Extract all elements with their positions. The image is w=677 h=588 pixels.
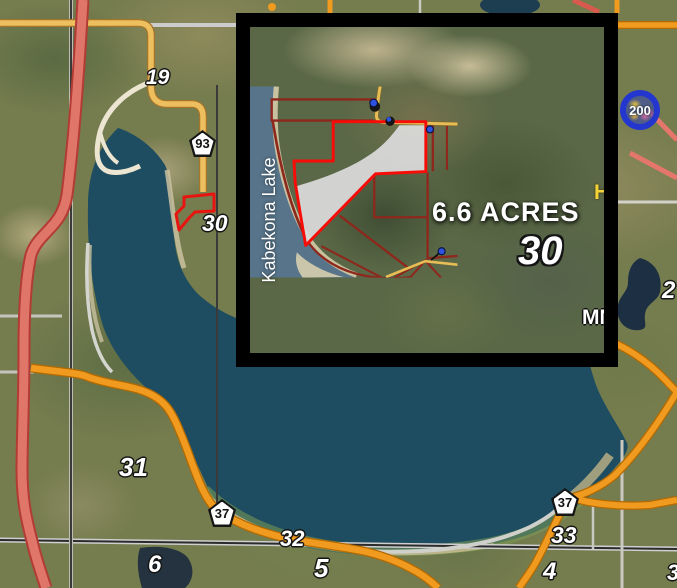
section-label-31: 31 [119,452,148,483]
marker-200-number: 200 [629,103,651,118]
section-label-5: 5 [314,553,328,584]
shield-37e-number: 37 [558,495,572,510]
clipped-mn-label: MN [582,306,604,330]
pond-northeast [617,258,660,330]
inset-imagery: Kabekona Lake 6.6 ACRES 30 H MN [250,27,604,353]
section-label-6: 6 [148,551,161,579]
section-label-2-clipped: 2 [662,277,675,305]
clipped-h-label: H [594,181,604,205]
aerial-map-image: 19 30 31 32 33 4 5 6 2 3 93 37 37 200 [0,0,677,588]
inset-detail-map: Kabekona Lake 6.6 ACRES 30 H MN [236,13,618,367]
mn-highway-200-marker: 200 [620,90,660,130]
inset-lake-label: Kabekona Lake [259,135,283,305]
parcel-fill [296,125,424,245]
section-label-32: 32 [280,526,304,552]
section-label-19: 19 [146,66,169,90]
section-label-4: 4 [543,558,556,586]
section-label-3-clipped: 3 [667,560,677,586]
section-label-30: 30 [202,210,228,237]
inset-yellow-spur [386,261,458,277]
shield-93-number: 93 [195,136,209,151]
shield-37w-number: 37 [215,506,229,521]
section-label-33: 33 [551,522,577,549]
inset-overlay [250,27,604,353]
acreage-label: 6.6 ACRES [432,197,580,228]
pond-south [138,547,193,588]
inset-section-label-30: 30 [518,229,563,274]
